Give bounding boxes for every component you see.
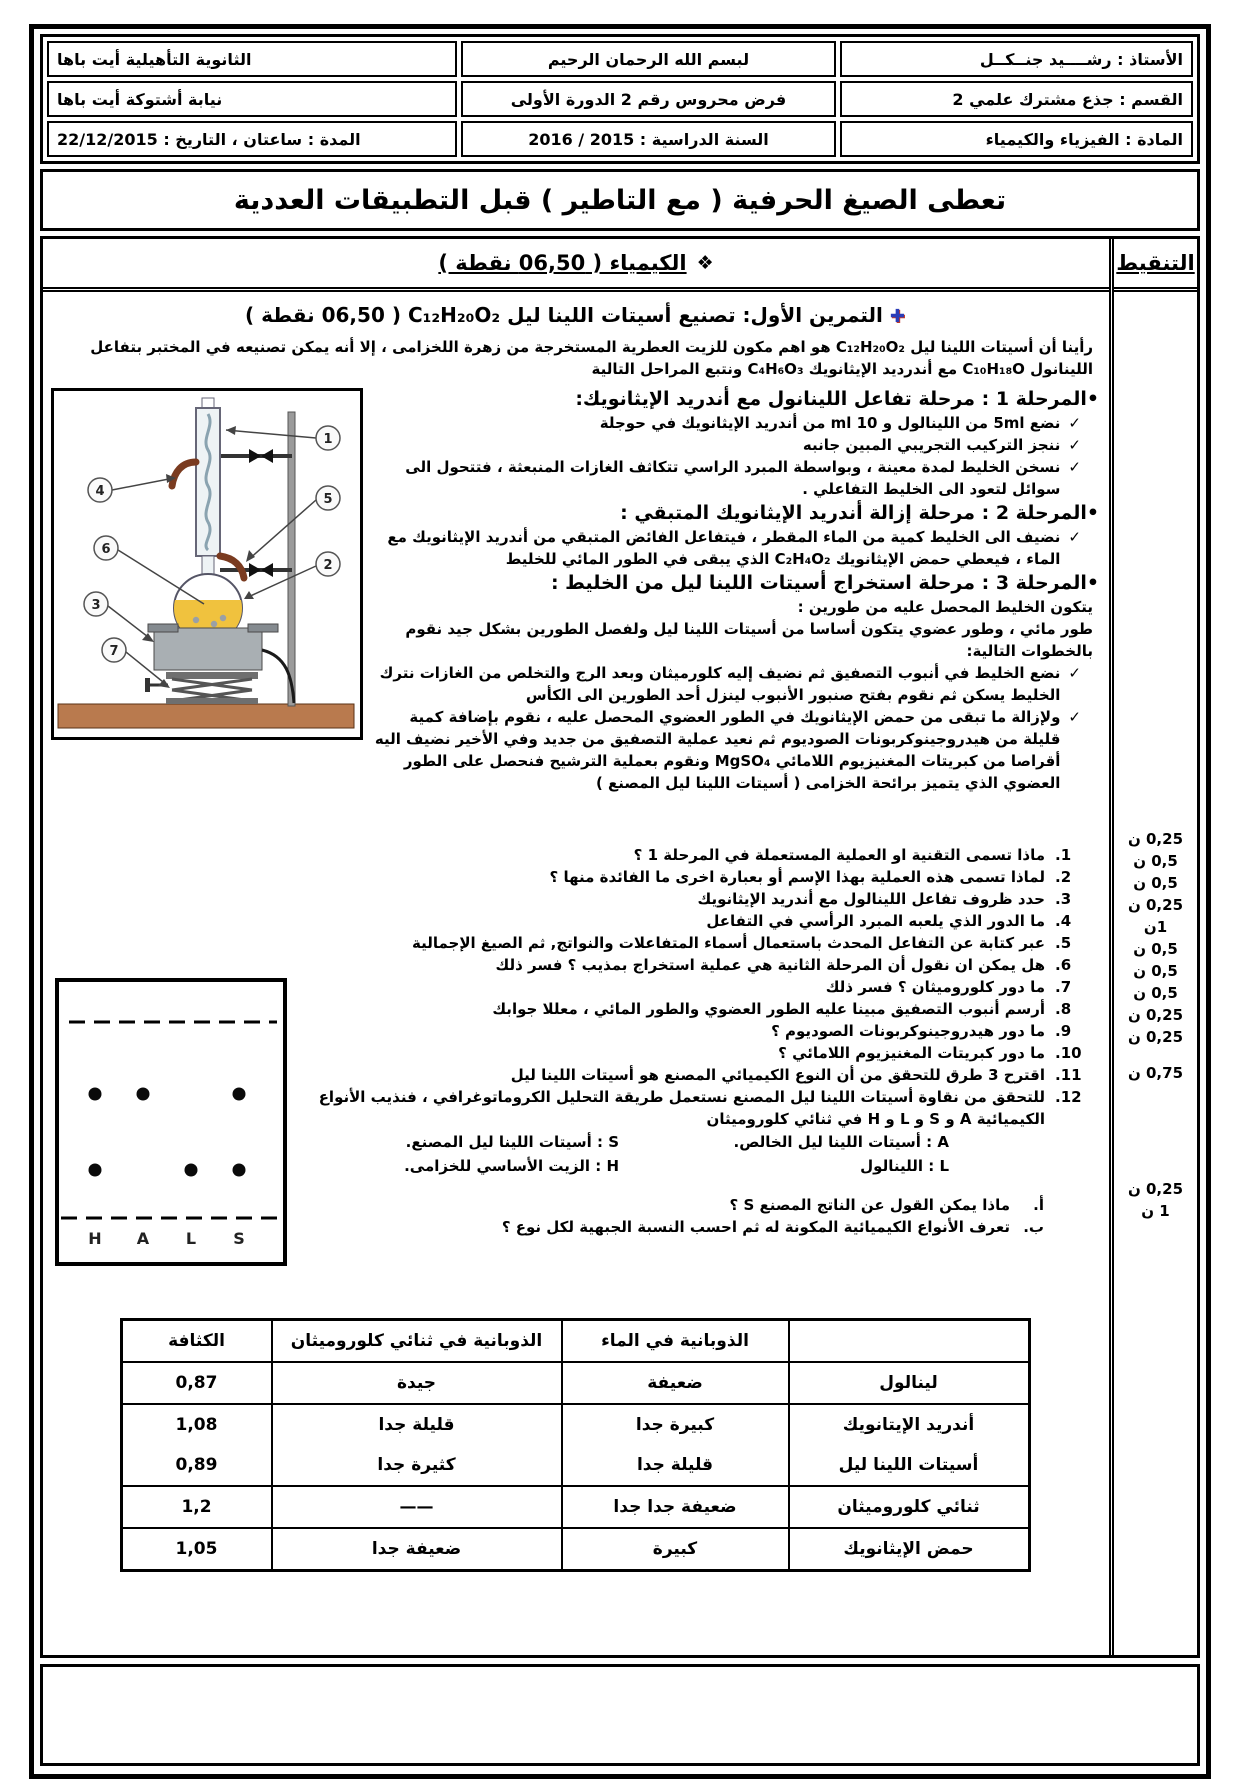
- jack-top-plate: [166, 672, 258, 679]
- question-item: 6.هل يمكن ان نقول أن المرحلة الثانية هي …: [51, 954, 1099, 976]
- stage1-item-text: ننجز التركيب التجريبي المبين جانبه: [803, 434, 1061, 456]
- question-number: 2.: [1045, 866, 1099, 888]
- leader-line: [248, 500, 316, 560]
- reflux-apparatus-drawing: 1 4 5 6: [56, 395, 356, 733]
- mark-sub-a: 0,25 ن: [1114, 1180, 1197, 1198]
- deposit-label-A: A: [137, 1229, 150, 1248]
- question-text: لماذا تسمى هذه العملية بهذا الإسم أو بعب…: [51, 866, 1045, 888]
- apparatus-label-6: 6: [101, 542, 110, 557]
- solubility-header-row: الذوبانية في الماء الذوبانية في ثنائي كل…: [121, 1320, 1029, 1363]
- apparatus-label-2: 2: [323, 558, 332, 573]
- diamond-icon: ❖: [697, 252, 714, 274]
- question-number: 6.: [1045, 954, 1099, 976]
- stage1-item: ✓ نضع 5ml من اللينالول و 10 ml من أندريد…: [373, 412, 1099, 434]
- table-corner-cell: [789, 1320, 1030, 1363]
- teacher-name: الأستاذ : رشــــيد جنــكــل: [840, 41, 1193, 77]
- question-number: 4.: [1045, 910, 1099, 932]
- mark-q8: 0,5 ن: [1114, 984, 1197, 1002]
- school-name: الثانوية التأهيلية أيت باها: [47, 41, 457, 77]
- density-value: 1,08: [121, 1404, 272, 1445]
- exercise-title: ✚ التمرين الأول: تصنيع أسيتات اللينا ليل…: [51, 298, 1099, 334]
- question-text: ما دور كلوروميثان ؟ فسر ذلك: [299, 976, 1045, 998]
- species-name: ثنائي كلوروميثان: [789, 1486, 1030, 1528]
- question-item: 9.ما دور هيدروجينوكربونات الصوديوم ؟: [299, 1020, 1099, 1042]
- col-header-dcm: الذوبانية في ثنائي كلوروميثان: [272, 1320, 562, 1363]
- spot-upper-S: [233, 1088, 246, 1101]
- questions-list: 1.ماذا تسمى التقنية او العملية المستعملة…: [51, 844, 1099, 1238]
- stage3-item: ✓ نضع الخليط في أنبوب التصفيق ثم نضيف إل…: [373, 662, 1099, 706]
- question-number: 1.: [1045, 844, 1099, 866]
- delegation: نيابة أشتوكة أيت باها: [47, 81, 457, 117]
- grading-marks: 0,25 ن 0,5 ن 0,5 ن 0,25 ن 1ن 0,5 ن 0,5 ن…: [1114, 292, 1197, 1655]
- question-item: 3.حدد ظروف تفاعل اللينالول مع أندريد الإ…: [51, 888, 1099, 910]
- sub-question-text: تعرف الأنواع الكيميائية المكونة له ثم اح…: [502, 1216, 1010, 1238]
- dcm-solubility: قليلة جدا: [272, 1404, 562, 1445]
- exam-title: فرض محروس رقم 2 الدورة الأولى: [461, 81, 837, 117]
- main-frame: التنقيط 0,25 ن 0,5 ن 0,5 ن 0,25 ن 1ن 0,5…: [40, 236, 1200, 1658]
- mark-q11: 0,75 ن: [1114, 1064, 1197, 1082]
- density-value: 1,2: [121, 1486, 272, 1528]
- question-item: 11.اقترح 3 طرق للتحقق من أن النوع الكيمي…: [299, 1064, 1099, 1086]
- question-item: 10.ما دور كبريتات المغنيزيوم اللامائي ؟: [299, 1042, 1099, 1064]
- question-item: 1.ماذا تسمى التقنية او العملية المستعملة…: [51, 844, 1099, 866]
- apparatus-label-1: 1: [323, 432, 332, 447]
- legend-A: A : أسيتات اللينا ليل الخالص.: [619, 1130, 949, 1154]
- col-header-density: الكثافة: [121, 1320, 272, 1363]
- header-table: الأستاذ : رشــــيد جنــكــل لبسم الله ال…: [40, 34, 1200, 164]
- instructions-banner: تعطى الصيغ الحرفية ( مع التاطير ) قبل ال…: [40, 169, 1200, 231]
- section-title: الكيمياء ( 06,50 نقطة ): [438, 251, 686, 275]
- question-item: 4.ما الدور الذي يلعبه المبرد الرأسي في ا…: [51, 910, 1099, 932]
- deposit-label-L: L: [186, 1229, 196, 1248]
- density-value: 1,05: [121, 1528, 272, 1571]
- apparatus-label-7: 7: [109, 644, 118, 659]
- col-header-water: الذوبانية في الماء: [562, 1320, 789, 1363]
- question-text: عبر كتابة عن التفاعل المحدث باستعمال أسم…: [51, 932, 1045, 954]
- mark-q7: 0,5 ن: [1114, 962, 1197, 980]
- exercise-body: ✚ التمرين الأول: تصنيع أسيتات اللينا ليل…: [43, 292, 1109, 1655]
- header-row: القسم : جذع مشترك علمي 2 فرض محروس رقم 2…: [47, 81, 1193, 117]
- spot-upper-A: [137, 1088, 150, 1101]
- question-text: هل يمكن ان نقول أن المرحلة الثانية هي عم…: [51, 954, 1045, 976]
- check-icon: ✓: [1068, 456, 1081, 500]
- question-item: 8.أرسم أنبوب التصفيق مبينا عليه الطور ال…: [299, 998, 1099, 1020]
- stage3-item: ✓ ولإزالة ما تبقى من حمض الإيثانويك في ا…: [373, 706, 1099, 794]
- question-text: اقترح 3 طرق للتحقق من أن النوع الكيميائي…: [299, 1064, 1045, 1086]
- stage3-item-text: ولإزالة ما تبقى من حمض الإيثانويك في الط…: [373, 706, 1060, 794]
- spot-upper-H: [89, 1088, 102, 1101]
- apparatus-label-5: 5: [323, 492, 332, 507]
- species-name: أسيتات اللينا ليل: [789, 1445, 1030, 1486]
- deposit-label-H: H: [88, 1229, 101, 1248]
- exercise-title-text: التمرين الأول: تصنيع أسيتات اللينا ليل: [507, 303, 883, 327]
- question-item: 7.ما دور كلوروميثان ؟ فسر ذلك: [299, 976, 1099, 998]
- basmala: لبسم الله الرحمان الرحيم: [461, 41, 837, 77]
- boiling-stone: [211, 621, 217, 627]
- table-row: أندريد الإيتانويك كبيرة جدا قليلة جدا 1,…: [121, 1404, 1029, 1445]
- school-year: السنة الدراسية : 2015 / 2016: [461, 121, 837, 157]
- question-text: ما دور كبريتات المغنيزيوم اللامائي ؟: [299, 1042, 1045, 1064]
- reflux-apparatus-figure: 1 4 5 6: [51, 388, 363, 740]
- question-text: أرسم أنبوب التصفيق مبينا عليه الطور العض…: [299, 998, 1045, 1020]
- leader-arrow: [246, 550, 255, 562]
- table-row: حمض الإيثانويك كبيرة ضعيفة جدا 1,05: [121, 1528, 1029, 1571]
- question-number: 8.: [1045, 998, 1099, 1020]
- leader-line: [112, 478, 174, 490]
- stage2-item-text: نضيف الى الخليط كمية من الماء المقطر ، ف…: [373, 526, 1060, 570]
- jack-handle: [145, 678, 150, 692]
- leader-line: [118, 550, 204, 604]
- apparatus-label-3: 3: [91, 598, 100, 613]
- heating-mantle: [154, 628, 262, 670]
- density-value: 0,87: [121, 1362, 272, 1404]
- question-number: 11.: [1045, 1064, 1099, 1086]
- water-solubility: ضعيفة جدا جدا: [562, 1486, 789, 1528]
- clamp-nut-upper: [249, 449, 273, 463]
- stage1-item-text: نضع 5ml من اللينالول و 10 ml من أندريد ا…: [600, 412, 1061, 434]
- water-solubility: قليلة جدا: [562, 1445, 789, 1486]
- spot-lower-H: [89, 1164, 102, 1177]
- exercise-points: ( 06,50 نقطة ): [245, 303, 401, 327]
- sub-question-item: ب.تعرف الأنواع الكيميائية المكونة له ثم …: [299, 1216, 1044, 1238]
- stage3-item-text: نضع الخليط في أنبوب التصفيق ثم نضيف إليه…: [373, 662, 1060, 706]
- legend-S: S : أسيتات اللينا ليل المصنع.: [406, 1130, 619, 1154]
- header-row: المادة : الفيزياء والكيمياء السنة الدراس…: [47, 121, 1193, 157]
- water-solubility: كبيرة جدا: [562, 1404, 789, 1445]
- water-outlet-tube: [172, 462, 196, 486]
- mantle-rim-left: [148, 624, 178, 632]
- legend-H: H : الزيت الأساسي للخزامى.: [404, 1154, 619, 1178]
- mark-q9: 0,25 ن: [1114, 1006, 1197, 1024]
- mark-q1: 0,25 ن: [1114, 830, 1197, 848]
- dcm-solubility: ——: [272, 1486, 562, 1528]
- mark-q10: 0,25 ن: [1114, 1028, 1197, 1046]
- sub-question-number: ب.: [1010, 1216, 1044, 1238]
- grading-column: التنقيط 0,25 ن 0,5 ن 0,5 ن 0,25 ن 1ن 0,5…: [1109, 239, 1197, 1655]
- exam-page: الأستاذ : رشــــيد جنــكــل لبسم الله ال…: [29, 24, 1211, 1779]
- boiling-stone: [220, 615, 226, 621]
- species-name: أندريد الإيتانويك: [789, 1404, 1030, 1445]
- question-item: 12.للتحقق من نقاوة أسيتات اللينا ليل الم…: [299, 1086, 1099, 1130]
- table-row: ثنائي كلوروميثان ضعيفة جدا جدا —— 1,2: [121, 1486, 1029, 1528]
- question-number: 9.: [1045, 1020, 1099, 1042]
- check-icon: ✓: [1068, 662, 1081, 706]
- mark-q5: 1ن: [1114, 918, 1197, 936]
- dcm-solubility: كثيرة جدا: [272, 1445, 562, 1486]
- dcm-solubility: ضعيفة جدا: [272, 1528, 562, 1571]
- leader-arrow: [226, 426, 236, 435]
- water-inlet-tube: [220, 556, 244, 578]
- duration-date: المدة : ساعتان ، التاريخ : 22/12/2015: [47, 121, 457, 157]
- stage1-item: ✓ ننجز التركيب التجريبي المبين جانبه: [373, 434, 1099, 456]
- check-icon: ✓: [1068, 412, 1081, 434]
- legend-L: L : اللينالول: [619, 1154, 949, 1178]
- chromatography-plate-drawing: H A L S: [53, 976, 291, 1268]
- mark-sub-b: 1 ن: [1114, 1202, 1197, 1220]
- mark-q4: 0,25 ن: [1114, 896, 1197, 914]
- table-row: أسيتات اللينا ليل قليلة جدا كثيرة جدا 0,…: [121, 1445, 1029, 1486]
- apparatus-label-4: 4: [95, 484, 104, 499]
- exercise-statement: ✚ التمرين الأول: تصنيع أسيتات اللينا ليل…: [51, 298, 1099, 830]
- check-icon: ✓: [1068, 526, 1081, 570]
- question-number: 3.: [1045, 888, 1099, 910]
- sub-question-item: أ.ماذا يمكن القول عن الناتج المصنع S ؟: [299, 1194, 1044, 1216]
- sub-question-number: أ.: [1010, 1194, 1044, 1216]
- water-solubility: ضعيفة: [562, 1362, 789, 1404]
- question-number: 5.: [1045, 932, 1099, 954]
- question-item: 2.لماذا تسمى هذه العملية بهذا الإسم أو ب…: [51, 866, 1099, 888]
- question-text: حدد ظروف تفاعل اللينالول مع أندريد الإيث…: [51, 888, 1045, 910]
- stage1-item: ✓ نسخن الخليط لمدة معينة ، وبواسطة المبر…: [373, 456, 1099, 500]
- class-level: القسم : جذع مشترك علمي 2: [840, 81, 1193, 117]
- content-area: ❖ الكيمياء ( 06,50 نقطة ) ✚ التمرين الأو…: [43, 239, 1109, 1655]
- header-row: الأستاذ : رشــــيد جنــكــل لبسم الله ال…: [47, 41, 1193, 77]
- question-text: ما دور هيدروجينوكربونات الصوديوم ؟: [299, 1020, 1045, 1042]
- spot-lower-L: [185, 1164, 198, 1177]
- plus-icon: ✚: [890, 306, 905, 327]
- sub-question-text: ماذا يمكن القول عن الناتج المصنع S ؟: [730, 1194, 1010, 1216]
- question-number: 12.: [1045, 1086, 1099, 1130]
- question-text: ما الدور الذي يلعبه المبرد الرأسي في الت…: [51, 910, 1045, 932]
- question-text: ماذا تسمى التقنية او العملية المستعملة ف…: [51, 844, 1045, 866]
- clamp-nut-lower: [249, 563, 273, 577]
- exercise-formula: C₁₂H₂₀O₂: [408, 303, 500, 327]
- species-name: حمض الإيثانويك: [789, 1528, 1030, 1571]
- question-item: 5.عبر كتابة عن التفاعل المحدث باستعمال أ…: [51, 932, 1099, 954]
- legend-row: L : اللينالول H : الزيت الأساسي للخزامى.: [299, 1154, 1099, 1178]
- exercise-intro: رأينا أن أسيتات اللينا ليل C₁₂H₂₀O₂ هو ا…: [51, 336, 1093, 380]
- deposit-label-S: S: [233, 1229, 245, 1248]
- dcm-solubility: جيدة: [272, 1362, 562, 1404]
- question-number: 10.: [1045, 1042, 1099, 1064]
- water-solubility: كبيرة: [562, 1528, 789, 1571]
- mark-q2: 0,5 ن: [1114, 852, 1197, 870]
- mark-q3: 0,5 ن: [1114, 874, 1197, 892]
- leader-line: [108, 606, 152, 640]
- mantle-rim-right: [248, 624, 278, 632]
- density-value: 0,89: [121, 1445, 272, 1486]
- subject: المادة : الفيزياء والكيمياء: [840, 121, 1193, 157]
- species-name: لينالول: [789, 1362, 1030, 1404]
- table-row: لينالول ضعيفة جيدة 0,87: [121, 1362, 1029, 1404]
- empty-answer-box: [40, 1664, 1200, 1766]
- spot-lower-S: [233, 1164, 246, 1177]
- check-icon: ✓: [1068, 706, 1081, 794]
- stage1-item-text: نسخن الخليط لمدة معينة ، وبواسطة المبرد …: [373, 456, 1060, 500]
- boiling-stone: [193, 617, 199, 623]
- mark-q6: 0,5 ن: [1114, 940, 1197, 958]
- jack-base-plate: [166, 698, 258, 704]
- chemistry-section-header: ❖ الكيمياء ( 06,50 نقطة ): [43, 239, 1109, 292]
- check-icon: ✓: [1068, 434, 1081, 456]
- question-number: 7.: [1045, 976, 1099, 998]
- stage2-item: ✓ نضيف الى الخليط كمية من الماء المقطر ،…: [373, 526, 1099, 570]
- chromatography-plate-figure: H A L S: [53, 976, 291, 1268]
- bench-surface: [58, 704, 354, 728]
- grading-title: التنقيط: [1114, 239, 1197, 292]
- legend-row: A : أسيتات اللينا ليل الخالص. S : أسيتات…: [299, 1130, 1099, 1154]
- solubility-table: الذوبانية في الماء الذوبانية في ثنائي كل…: [120, 1318, 1031, 1572]
- leader-line: [226, 430, 316, 438]
- question-text: للتحقق من نقاوة أسيتات اللينا ليل المصنع…: [299, 1086, 1045, 1130]
